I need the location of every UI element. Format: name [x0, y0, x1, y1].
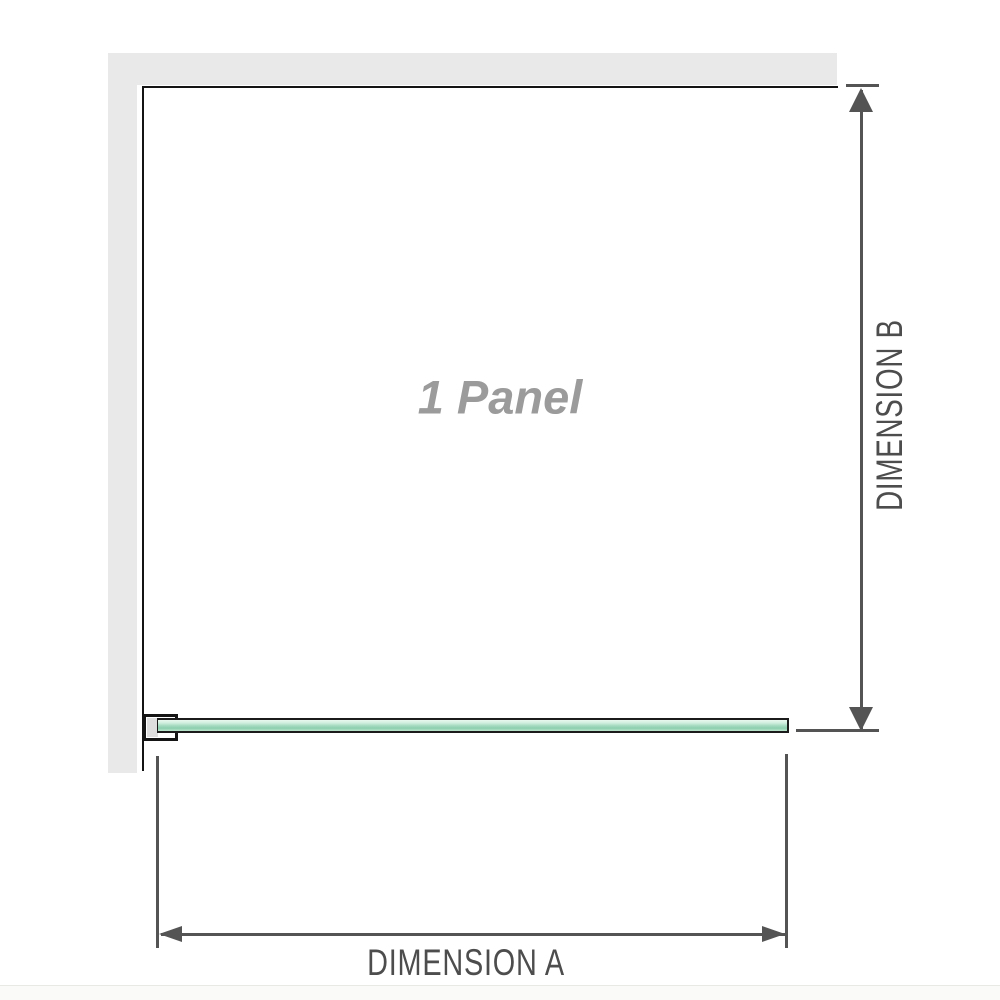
arrow-up-icon — [849, 88, 873, 112]
arrow-right-icon — [762, 926, 785, 942]
dimension-a-line — [161, 933, 785, 936]
glass-panel — [157, 718, 789, 733]
dimension-b-top-tick — [846, 84, 879, 87]
dimension-b-label: DIMENSION B — [869, 319, 911, 511]
wall-top-strip — [108, 53, 837, 85]
wall-face-top-edge — [142, 86, 838, 88]
image-bottom-strip — [0, 986, 1000, 1000]
dimension-a-label: DIMENSION A — [367, 942, 565, 984]
arrow-left-icon — [159, 926, 182, 942]
shower-screen-diagram: 1 Panel DIMENSION B DIMENSION A — [0, 0, 1000, 1000]
dimension-b-line — [860, 90, 863, 729]
arrow-down-icon — [849, 707, 873, 731]
wall-face-left-edge — [142, 86, 144, 771]
dimension-a-right-extension — [785, 754, 788, 948]
wall-left-strip — [108, 53, 137, 773]
panel-count-label: 1 Panel — [418, 370, 583, 425]
dimension-a-left-extension — [156, 756, 159, 948]
